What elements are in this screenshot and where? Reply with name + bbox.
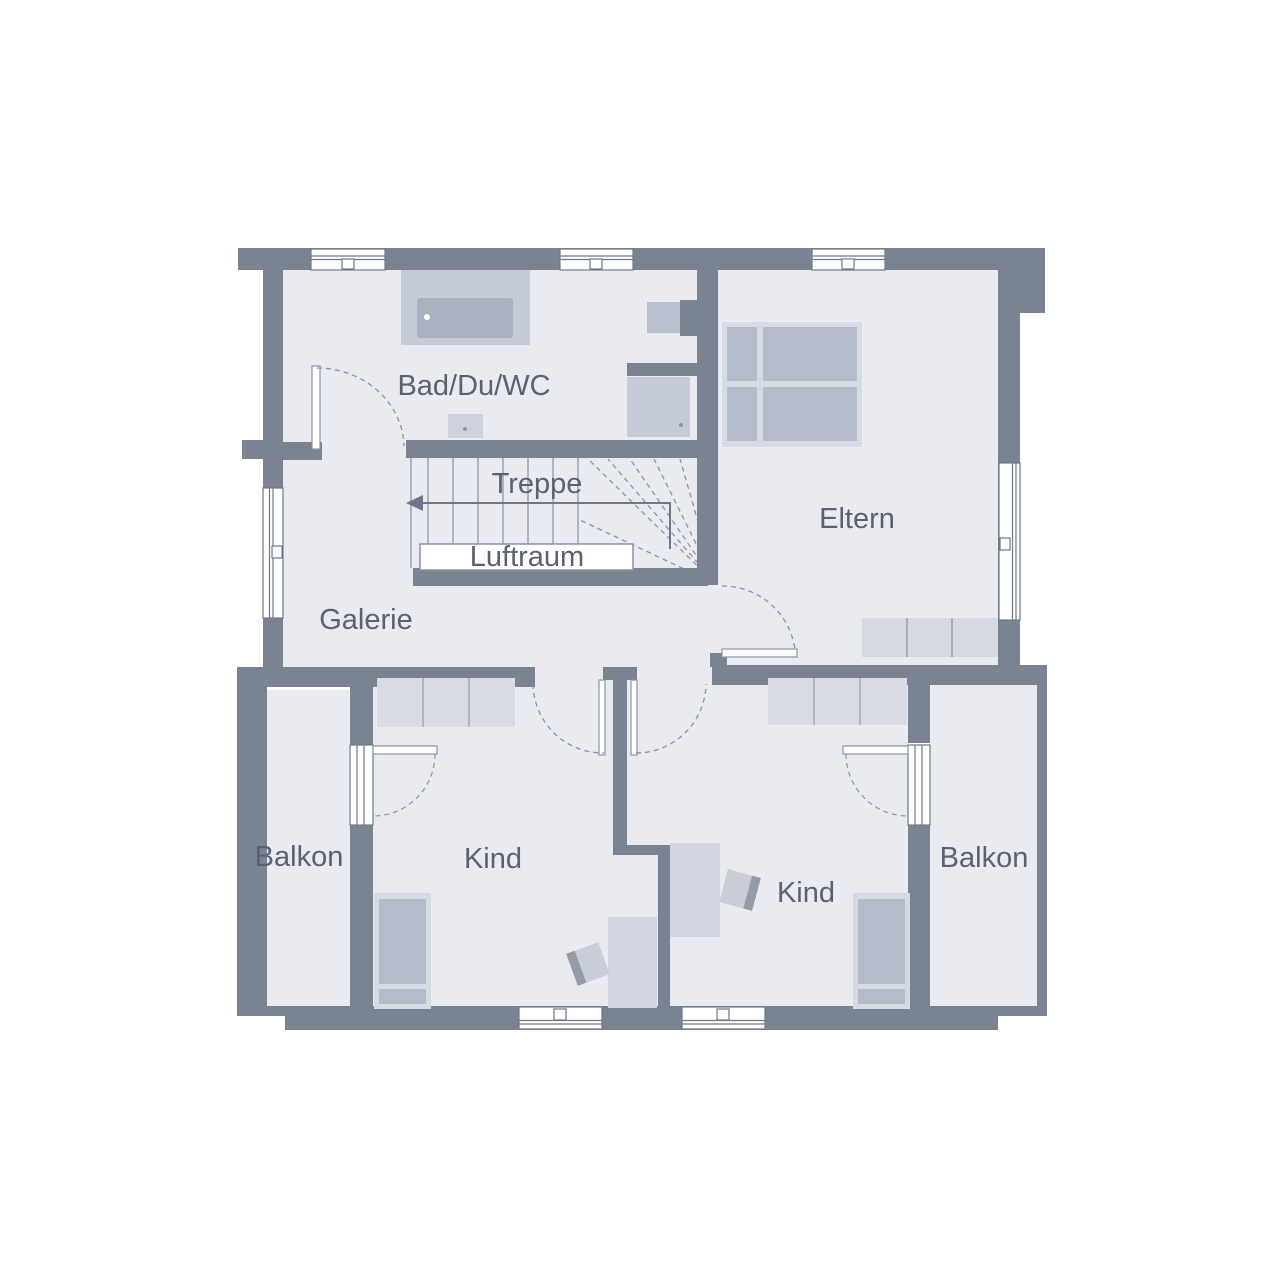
room-label-bad: Bad/Du/WC (397, 370, 550, 402)
floor-plan-drawing: Bad/Du/WC Treppe Luftraum Eltern Galerie… (0, 0, 1280, 1280)
bed-mattress (763, 387, 857, 441)
door-leaf (312, 366, 320, 449)
wall-balcony-right-west-lower (908, 825, 930, 1008)
wall-balcony-right-east (1037, 685, 1047, 1010)
shower-drain (679, 423, 683, 427)
room-label-kind-rechts: Kind (777, 877, 835, 909)
window-right-eltern (999, 463, 1020, 620)
wardrobe-kind-right (768, 678, 907, 725)
washbasin (448, 414, 483, 438)
window-bottom-2 (682, 1007, 765, 1029)
wall-eltern-divider (697, 248, 718, 585)
wall-balcony-right-west-upper (908, 685, 930, 743)
wall-children-divider-jog (613, 845, 670, 855)
window-left-gallery (263, 488, 283, 618)
door-leaf (722, 649, 797, 657)
room-label-luftraum: Luftraum (470, 541, 584, 573)
window-top-2 (560, 249, 633, 270)
window-bottom-1 (519, 1007, 602, 1029)
wall-wc-stub (680, 300, 698, 336)
wall-balcony-left-east-lower (350, 825, 373, 1008)
double-bed (722, 322, 862, 447)
wardrobe-eltern (862, 618, 998, 657)
wall-shower-stub (627, 363, 698, 376)
wall-bath-south-right (406, 440, 718, 458)
wall-balcony-left-south (237, 1006, 285, 1016)
room-label-kind-links: Kind (464, 843, 522, 875)
desk-kind-right (670, 843, 720, 937)
room-label-galerie: Galerie (319, 604, 413, 636)
bed-mattress (763, 327, 857, 381)
desk-kind-left (608, 917, 657, 1008)
window-top-3 (812, 249, 885, 270)
bed-kind-right (853, 893, 910, 1009)
door-leaf (599, 680, 605, 755)
bed-pillow (727, 327, 757, 381)
wall-children-divider-upper (613, 680, 627, 847)
washbasin-drain (463, 427, 467, 431)
wall-pilaster-left (242, 440, 263, 459)
wall-center-stub (603, 667, 637, 680)
bathtub (417, 298, 513, 338)
wall-balcony-left-east-upper (350, 687, 373, 745)
door-leaf (373, 746, 437, 754)
floor-plan-page: Bad/Du/WC Treppe Luftraum Eltern Galerie… (0, 0, 1280, 1280)
bathtub-drain (424, 314, 430, 320)
bed-pillow (727, 387, 757, 441)
room-label-treppe: Treppe (492, 468, 583, 500)
wall-pilaster-top-right (1020, 270, 1045, 313)
room-label-eltern: Eltern (819, 503, 895, 535)
window-top-1 (311, 249, 385, 270)
door-leaf (843, 746, 908, 754)
wall-exterior-bottom (285, 1006, 998, 1030)
shower-tray (627, 377, 690, 437)
wardrobe-kind-left (377, 678, 515, 727)
wall-children-divider-lower (658, 855, 670, 1008)
wall-balcony-right-south (998, 1006, 1047, 1016)
room-label-balkon-links: Balkon (255, 841, 344, 873)
door-leaf (631, 680, 637, 755)
room-label-balkon-rechts: Balkon (940, 842, 1029, 874)
bed-kind-left (374, 893, 431, 1009)
wc-toilet (647, 302, 680, 333)
